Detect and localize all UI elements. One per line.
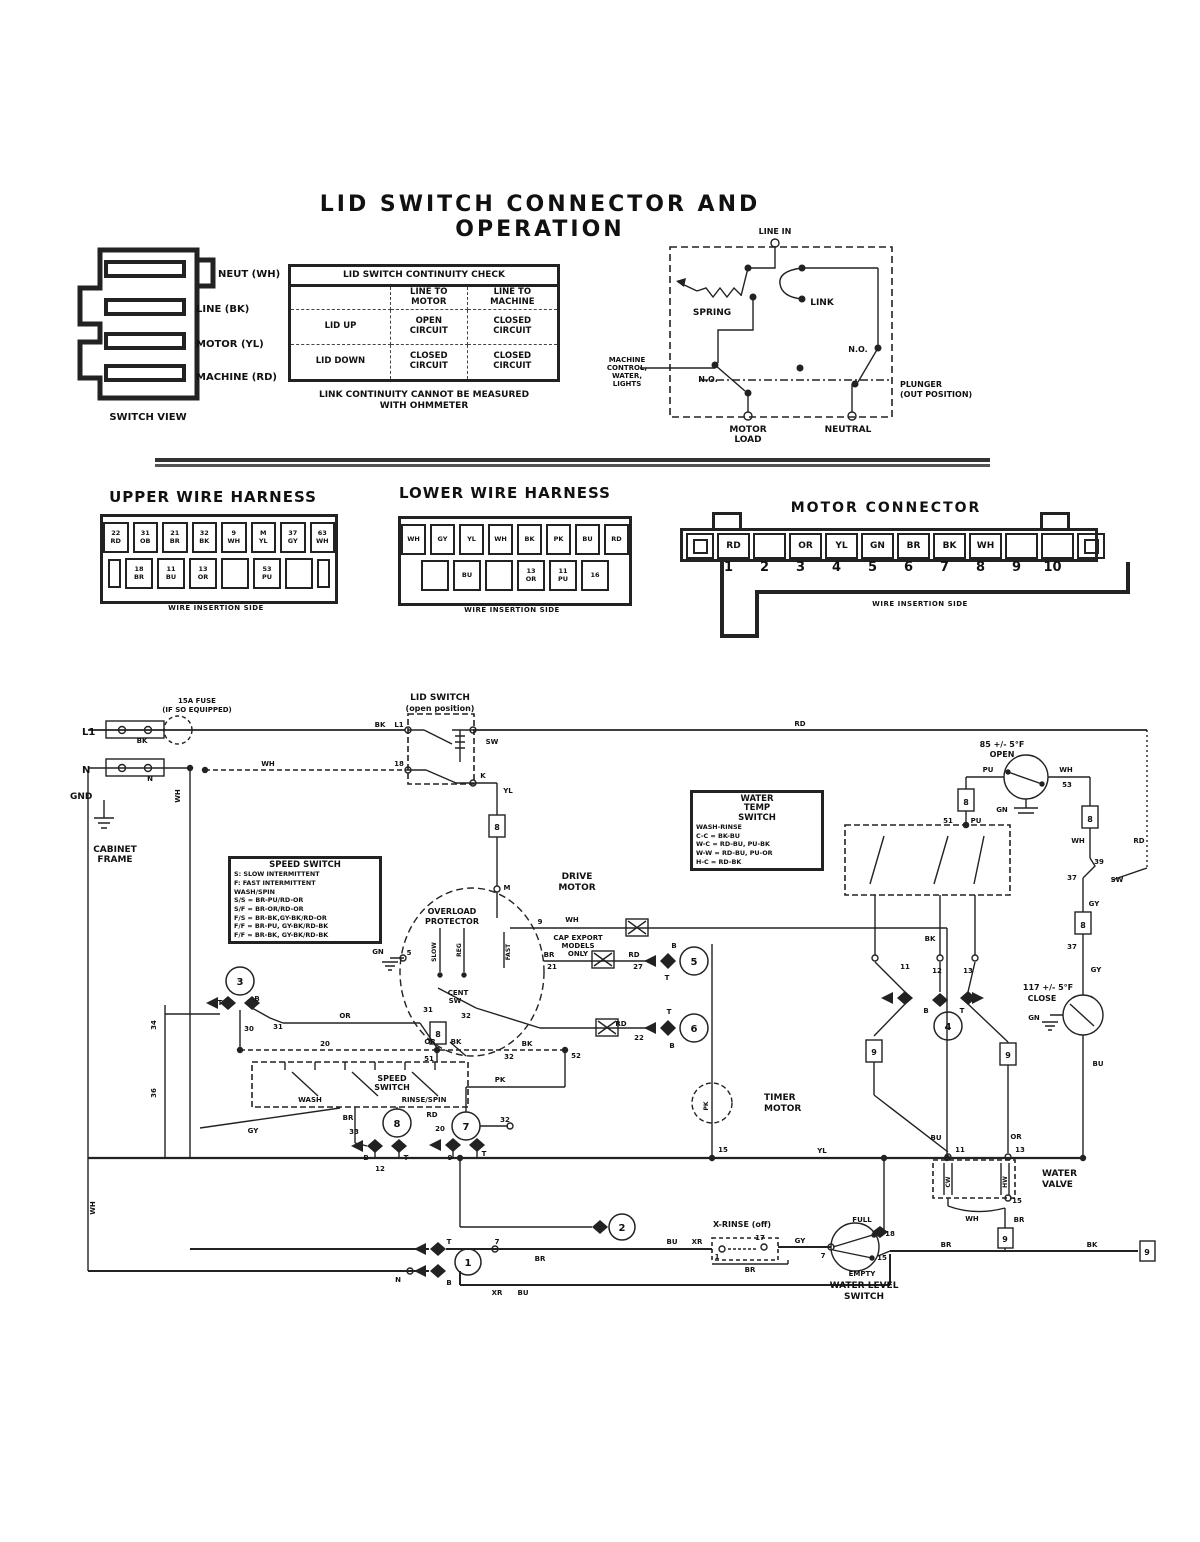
diagram-label: RD (628, 951, 639, 959)
diagram-label: WH (261, 760, 275, 768)
diagram-label: BU (666, 1238, 677, 1246)
diagram-label: BK (925, 935, 936, 943)
diagram-label: 27 (633, 963, 643, 971)
diagram-label: K (480, 772, 486, 780)
legend-line: F/S = BR-BK,GY-BK/RD-OR (234, 914, 376, 923)
diagram-label: SWITCH VIEW (109, 412, 186, 423)
diagram-label: WH (1059, 766, 1073, 774)
diagram-label: 1 (465, 1258, 472, 1269)
diagram-label: T (960, 1007, 965, 1015)
diagram-label: 20 (320, 1040, 330, 1048)
legend-line: F: FAST INTERMITTENT (234, 879, 376, 888)
legend-line: WASH-RINSE (696, 823, 818, 832)
diagram-label: GND (70, 792, 92, 802)
diagram-label: MOTOR (729, 425, 766, 435)
diagram-label: SLOW (431, 942, 438, 962)
diagram-label: GY (248, 1127, 260, 1135)
diagram-label: 15 (877, 1254, 887, 1262)
diagram-label: OR (1010, 1133, 1022, 1141)
diagram-label: N (82, 765, 90, 776)
diagram-label: T (665, 974, 670, 982)
legend-box: WATERTEMPSWITCHWASH-RINSEC-C = BK-BUW-C … (690, 790, 824, 871)
diagram-label: 51 (943, 817, 953, 825)
diagram-label: RD (1133, 837, 1144, 845)
diagram-label: B (254, 995, 259, 1003)
diagram-label: 9 (448, 1154, 453, 1162)
diagram-label: 15A FUSE (178, 697, 216, 705)
legend-line: H-C = RD-BK (696, 858, 818, 867)
motor-connector-bracket (722, 562, 1128, 636)
diagram-label: BU (1092, 1060, 1103, 1068)
diagram-label: 52 (571, 1052, 581, 1060)
legend-line: S: SLOW INTERMITTENT (234, 870, 376, 879)
legend-line: WASH/SPIN (234, 888, 376, 897)
diagram-label: SW (449, 997, 462, 1005)
diagram-label: WATER, (612, 372, 642, 380)
diagram-label: NEUT (WH) (218, 269, 280, 280)
legend-box: SPEED SWITCHS: SLOW INTERMITTENTF: FAST … (228, 856, 382, 944)
diagram-label: PU (971, 817, 982, 825)
diagram-label: N (395, 1276, 401, 1284)
diagram-label: BK (1087, 1241, 1098, 1249)
diagram-label: 39 (1094, 858, 1104, 866)
diagram-label: MOTOR (558, 883, 595, 893)
diagram-label: TIMER (764, 1093, 796, 1103)
diagram-label: MACHINE (RD) (196, 372, 277, 383)
diagram-label: WH (89, 1201, 97, 1215)
diagram-label: BR (535, 1255, 546, 1263)
diagram-label: CABINET (93, 845, 137, 855)
diagram-label: OPEN (990, 750, 1015, 759)
diagram-label: SW (1111, 876, 1124, 884)
diagram-label: PROTECTOR (425, 917, 479, 926)
diagram-label: OR (339, 1012, 351, 1020)
diagram-label: 7 (821, 1252, 826, 1260)
diagram-label: 18 (394, 760, 404, 768)
diagram-label: GN (372, 948, 384, 956)
diagram-label: CLOSE (1028, 994, 1057, 1003)
diagram-label: PU (983, 766, 994, 774)
diagram-label: 6 (691, 1024, 698, 1035)
diagram-label: LIGHTS (613, 380, 642, 388)
diagram-label: GY (1091, 966, 1103, 974)
diagram-label: 18 (885, 1230, 895, 1238)
diagram-label: (open position) (406, 704, 475, 713)
diagram-label: (IF SO EQUIPPED) (162, 706, 232, 714)
diagram-label: SPRING (693, 308, 731, 318)
diagram-label: 34 (150, 1020, 158, 1030)
diagram-label: T (218, 999, 223, 1007)
diagram-label: BK (451, 1038, 462, 1046)
diagram-label: MODELS (561, 942, 594, 950)
diagram-label: VALVE (1042, 1180, 1073, 1190)
diagram-label: N.O. (698, 375, 717, 384)
diagram-label: 2 (619, 1223, 626, 1234)
diagram-label: 15 (718, 1146, 728, 1154)
diagram-label: HW (1002, 1176, 1009, 1188)
diagram-label: B (671, 942, 676, 950)
diagram-label: FULL (852, 1216, 872, 1224)
diagram-label: 8 (1087, 815, 1093, 824)
diagram-label: 32 (504, 1053, 514, 1061)
diagram-label: B (446, 1279, 451, 1287)
diagram-label: OR (424, 1038, 436, 1046)
section-divider (155, 458, 990, 467)
diagram-label: BU (930, 1134, 941, 1142)
diagram-label: 17 (755, 1234, 765, 1242)
diagram-label: N.O. (848, 345, 867, 354)
diagram-label: B (363, 1154, 368, 1162)
diagram-label: 5 (407, 949, 412, 957)
diagram-label: XR (692, 1238, 703, 1246)
diagram-label: 117 +/- 5°F (1023, 983, 1073, 992)
diagram-label: PK (703, 1101, 710, 1110)
diagram-label: SWITCH (844, 1292, 884, 1302)
diagram-label: 11 (955, 1146, 965, 1154)
diagram-label: 9 (1002, 1235, 1008, 1244)
legend-line: W-C = RD-BU, PU-BK (696, 840, 818, 849)
diagram-label: SWITCH (374, 1083, 410, 1092)
diagram-label: PLUNGER (900, 380, 942, 389)
diagram-label: L1 (394, 721, 403, 729)
diagram-linework (80, 239, 1155, 1285)
diagram-label: (OUT POSITION) (900, 390, 972, 399)
legend-title: SWITCH (696, 814, 818, 823)
diagram-label: LINK (810, 298, 835, 308)
switch-view-connector (80, 250, 213, 398)
diagram-label: 31 (423, 1006, 433, 1014)
diagram-label: T (447, 1238, 452, 1246)
diagram-label: 8 (435, 1030, 441, 1039)
diagram-label: 7 (495, 1238, 500, 1246)
diagram-label: 15 (1012, 1197, 1022, 1205)
diagram-label: LID SWITCH (410, 693, 470, 703)
diagram-label: T (482, 1150, 487, 1158)
diagram-label: EMPTY (849, 1270, 877, 1278)
diagram-label: 8 (494, 823, 500, 832)
legend-line: W-W = RD-BU, PU-OR (696, 849, 818, 858)
diagram-label: BU (517, 1289, 528, 1297)
diagram-label: DRIVE (562, 872, 593, 882)
diagram-label: 32 (500, 1116, 510, 1124)
diagram-label: NEUTRAL (825, 425, 872, 435)
diagram-label: 22 (634, 1034, 644, 1042)
diagram-label: 8 (963, 798, 969, 807)
diagram-label: N (147, 775, 153, 783)
diagram-label: 36 (150, 1088, 158, 1098)
diagram-label: 12 (375, 1165, 385, 1173)
diagram-label: BR (343, 1114, 354, 1122)
diagram-label: BK (137, 737, 148, 745)
diagram-label: 9 (871, 1048, 877, 1057)
legend-title: SPEED SWITCH (234, 861, 376, 870)
diagram-label: SPEED (377, 1074, 407, 1083)
diagram-label: MACHINE (609, 356, 646, 364)
wiring-diagram-page: NEUT (WH)LINE (BK)MOTOR (YL)MACHINE (RD)… (0, 0, 1200, 1542)
diagram-label: RD (794, 720, 805, 728)
diagram-label: 51 (424, 1055, 434, 1063)
diagram-label: YL (816, 1147, 827, 1155)
diagram-label: WATER LEVEL (830, 1281, 899, 1291)
diagram-label: FRAME (97, 855, 132, 865)
diagram-label: LINE IN (759, 227, 792, 236)
diagram-label: FAST (505, 943, 512, 960)
diagram-canvas: NEUT (WH)LINE (BK)MOTOR (YL)MACHINE (RD)… (0, 0, 1200, 1542)
operation-circuit (640, 239, 892, 420)
diagram-label: 13 (963, 967, 973, 975)
diagram-label: GN (996, 806, 1008, 814)
diagram-label: WASH (298, 1096, 322, 1104)
diagram-label: BR (1014, 1216, 1025, 1224)
diagram-label: WH (1071, 837, 1085, 845)
diagram-label: T (667, 1008, 672, 1016)
diagram-label: CENT (448, 989, 469, 997)
diagram-label: B (669, 1042, 674, 1050)
diagram-label: GN (1028, 1014, 1040, 1022)
diagram-label: CAP EXPORT (553, 934, 602, 942)
diagram-label: PK (495, 1076, 506, 1084)
diagram-label: 9 (1144, 1248, 1150, 1257)
diagram-label: 13 (1015, 1146, 1025, 1154)
diagram-label: 1 (715, 1253, 720, 1261)
diagram-label: CW (945, 1176, 952, 1187)
diagram-label: YL (502, 787, 513, 795)
diagram-label: 31 (273, 1023, 283, 1031)
diagram-label: 9 (1005, 1051, 1011, 1060)
diagram-label: CONTROL, (607, 364, 647, 372)
diagram-label: 9 (538, 918, 543, 926)
diagram-label: 37 (1067, 943, 1077, 951)
diagram-label: LOAD (734, 435, 761, 445)
diagram-label: XR (492, 1289, 503, 1297)
diagram-label: GY (1089, 900, 1101, 908)
diagram-label: BR (941, 1241, 952, 1249)
diagram-label: RD (615, 1020, 626, 1028)
diagram-label: 4 (945, 1022, 952, 1033)
diagram-label: RD (426, 1111, 437, 1119)
diagram-label: 53 (1062, 781, 1072, 789)
diagram-label: 12 (932, 967, 942, 975)
diagram-label: B (923, 1007, 928, 1015)
diagram-label: GY (795, 1237, 807, 1245)
diagram-label: 5 (691, 957, 698, 968)
legend-line: S/F = BR-OR/RD-OR (234, 905, 376, 914)
diagram-label: BR (745, 1266, 756, 1274)
legend-line: S/S = BR-PU/RD-OR (234, 896, 376, 905)
diagram-label: 21 (547, 963, 557, 971)
diagram-label: WH (174, 789, 182, 803)
schematic-wires (88, 714, 1155, 1285)
diagram-label: 8 (1080, 921, 1086, 930)
diagram-labels: NEUT (WH)LINE (BK)MOTOR (YL)MACHINE (RD)… (70, 227, 1150, 1302)
legend-line: F/F = BR-BK, GY-BK/RD-BK (234, 931, 376, 940)
diagram-label: MOTOR (YL) (196, 339, 264, 350)
legend-line: C-C = BK-BU (696, 832, 818, 841)
diagram-label: 11 (900, 963, 910, 971)
diagram-label: OVERLOAD (428, 907, 477, 916)
diagram-label: BK (375, 721, 386, 729)
diagram-label: T (404, 1154, 409, 1162)
diagram-label: SW (486, 738, 499, 746)
diagram-label: 33 (349, 1128, 359, 1136)
diagram-label: 20 (435, 1125, 445, 1133)
diagram-label: REG (456, 943, 463, 957)
diagram-label: BR (544, 951, 555, 959)
diagram-label: ONLY (568, 950, 589, 958)
diagram-label: WH (965, 1215, 979, 1223)
diagram-label: X-RINSE (off) (713, 1220, 771, 1229)
diagram-label: 37 (1067, 874, 1077, 882)
diagram-label: LINE (BK) (196, 304, 249, 315)
diagram-label: M (504, 884, 511, 892)
diagram-label: 3 (237, 977, 244, 988)
diagram-label: 7 (463, 1122, 470, 1133)
diagram-label: 30 (244, 1025, 254, 1033)
diagram-label: BK (522, 1040, 533, 1048)
diagram-label: 8 (394, 1119, 401, 1130)
diagram-label: MOTOR (764, 1104, 801, 1114)
diagram-label: 85 +/- 5°F (980, 740, 1025, 749)
diagram-label: WH (565, 916, 579, 924)
diagram-label: RINSE/SPIN (402, 1096, 447, 1104)
legend-line: F/F = BR-PU, GY-BK/RD-BK (234, 922, 376, 931)
diagram-label: L1 (82, 727, 95, 738)
diagram-label: WATER (1042, 1169, 1077, 1179)
diagram-label: 32 (461, 1012, 471, 1020)
